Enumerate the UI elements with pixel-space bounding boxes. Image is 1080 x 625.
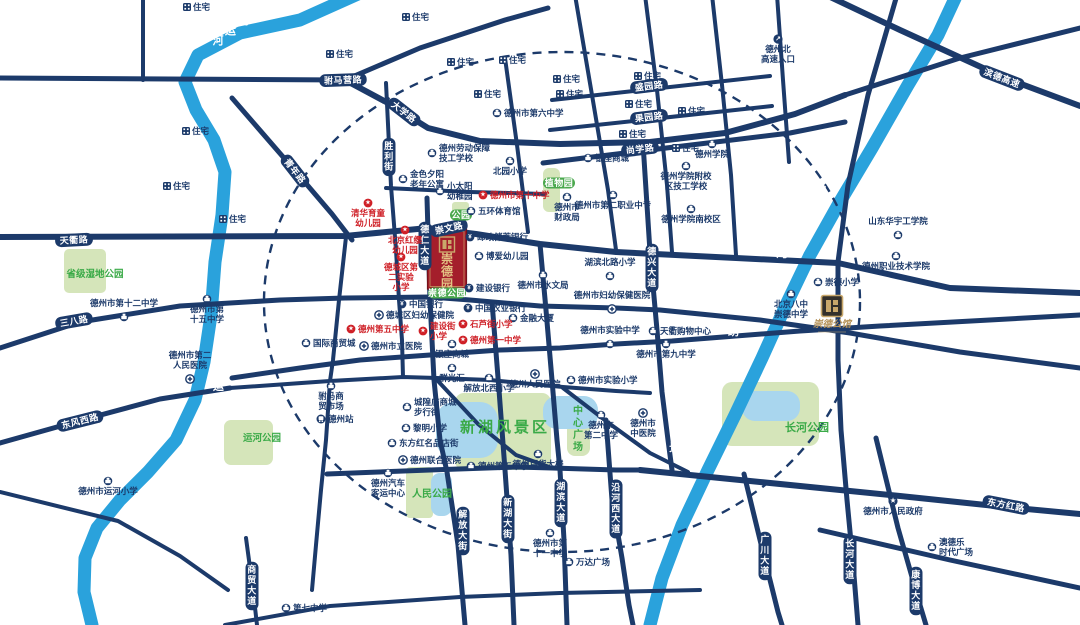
- label: 湖: [503, 507, 513, 518]
- housing-marker: 住宅: [625, 99, 653, 109]
- building-icon: [540, 274, 545, 277]
- building-icon: [566, 194, 569, 196]
- label: 大: [458, 530, 468, 541]
- label: 广: [760, 534, 770, 545]
- housing-marker: 住宅: [619, 129, 647, 139]
- road-label: 康博大道: [910, 567, 923, 616]
- building-icon: [609, 341, 612, 343]
- building-icon: [283, 607, 288, 610]
- housing-icon: [635, 73, 637, 75]
- housing-icon: [479, 91, 481, 93]
- map-poi: 五环体育馆: [467, 206, 521, 216]
- train-station-icon: [319, 416, 324, 420]
- label: 技工学校: [439, 153, 474, 163]
- housing-icon: [183, 132, 185, 134]
- park-label: 运河公园: [243, 432, 281, 444]
- label: 街: [502, 528, 513, 539]
- location-map: 崇德园崇德公馆驸马营路大学路胜利街青年路天衢路三八路东风西路崇文路盛园路果园路尚…: [0, 0, 1080, 625]
- housing-icon: [626, 101, 628, 103]
- building-icon: [451, 365, 454, 367]
- map-poi: 德州站: [317, 414, 355, 424]
- label: 京: [250, 3, 261, 17]
- building-icon: [391, 440, 394, 442]
- map-poi: 德州市运河小学: [78, 477, 138, 496]
- road: [777, 0, 789, 162]
- map-canvas: 崇德园崇德公馆驸马营路大学路胜利街青年路天衢路三八路东风西路崇文路盛园路果园路尚…: [0, 0, 1080, 625]
- housing-icon: [448, 63, 450, 65]
- housing-icon: [624, 131, 626, 133]
- label: 幼稚园: [447, 191, 473, 201]
- label: 德州市人民政府: [863, 506, 923, 516]
- housing-icon: [163, 182, 171, 190]
- label: 贸市场: [318, 401, 344, 411]
- label: 德州百货大楼: [512, 459, 564, 469]
- housing-icon: [184, 8, 186, 10]
- label: 河: [207, 397, 218, 411]
- label: 德州汽车: [371, 478, 406, 488]
- building-icon: [929, 546, 934, 549]
- housing-marker: 住宅: [447, 57, 475, 67]
- label: 天衢路: [59, 233, 89, 246]
- label: 德州市立医院: [371, 341, 423, 351]
- label: 德城区第: [384, 262, 419, 272]
- label: 放: [457, 519, 468, 530]
- label: 邮政储蓄银行: [477, 232, 529, 242]
- label: 德: [420, 224, 430, 235]
- building-icon: [204, 298, 209, 301]
- label: 杭: [237, 13, 248, 27]
- building-icon: [402, 176, 405, 178]
- building-icon: [451, 341, 454, 343]
- building-icon: [429, 152, 434, 155]
- housing-icon: [407, 14, 409, 16]
- road-label: 天衢路: [55, 233, 93, 248]
- label: 驸马营路: [324, 74, 363, 86]
- housing-marker: 住宅: [163, 181, 191, 191]
- label: 德州学院附校: [660, 171, 712, 181]
- housing-icon: [500, 61, 502, 63]
- housing-icon: [499, 56, 507, 64]
- label: 中国农业银行: [475, 303, 527, 313]
- label: 银座商城: [594, 153, 630, 163]
- building-icon: [607, 343, 612, 346]
- label: 运河公园: [243, 432, 281, 444]
- road-label: 新湖大街: [502, 495, 515, 544]
- label: 德州市第: [190, 304, 225, 314]
- building-icon: [512, 315, 515, 317]
- housing-label: 住宅: [229, 214, 247, 224]
- map-poi: ★德州第一中学: [459, 335, 522, 345]
- road-label: 长河大道: [844, 536, 857, 585]
- label: 场: [573, 440, 583, 453]
- label: 大: [503, 518, 513, 529]
- housing-label: 住宅: [644, 71, 662, 81]
- building-icon: [570, 377, 573, 379]
- map-poi: ¥建设银行: [465, 283, 511, 293]
- label: 德州学院南校区: [661, 214, 721, 224]
- label: 京: [226, 341, 237, 355]
- building-icon: [690, 206, 693, 208]
- housing-icon: [500, 57, 502, 59]
- housing-label: 住宅: [688, 106, 706, 116]
- label: 运: [213, 379, 224, 392]
- housing-icon: [224, 220, 226, 222]
- label: 大: [911, 590, 921, 601]
- housing-label: 住宅: [563, 74, 581, 84]
- building-icon: [568, 559, 571, 561]
- park-label: 人民公园: [412, 487, 452, 500]
- mansion-layer: 崇德公馆: [813, 296, 853, 333]
- map-poi: ¥中国农业银行: [464, 303, 527, 313]
- label: 德州市妇幼保健医院: [574, 290, 651, 300]
- map-poi: 北园小学: [493, 157, 528, 176]
- road-label: 驸马营路: [319, 73, 367, 87]
- map-poi: 群光汇: [438, 364, 465, 383]
- label: ¥: [468, 234, 472, 241]
- label: ★: [889, 498, 896, 505]
- housing-icon: [557, 91, 559, 93]
- housing-marker: 住宅: [183, 2, 211, 12]
- housing-icon: [679, 112, 681, 114]
- housing-label: 住宅: [193, 2, 211, 12]
- label: 大: [420, 245, 430, 256]
- building-icon: [893, 255, 898, 258]
- housing-icon: [678, 107, 686, 115]
- map-poi: 金融大厦: [509, 313, 555, 323]
- map-poi: 德城区妇幼保健院: [375, 310, 455, 320]
- label: 北京红缨: [388, 235, 423, 245]
- housing-label: 住宅: [484, 89, 502, 99]
- label: 川: [759, 545, 770, 555]
- building-icon: [470, 208, 473, 210]
- label: 道: [611, 523, 621, 534]
- building-icon: [817, 279, 820, 281]
- map-poi: 解放北西小学: [463, 374, 515, 393]
- label: 贸: [247, 574, 257, 585]
- housing-icon: [448, 59, 450, 61]
- label: 河: [611, 492, 621, 503]
- housing-label: 住宅: [192, 126, 210, 136]
- road-label: 青年路: [278, 152, 311, 190]
- housing-icon: [673, 149, 675, 151]
- housing-icon: [679, 108, 681, 110]
- project-layer: 崇德园: [428, 229, 467, 291]
- building-icon: [711, 141, 714, 143]
- label: 解: [458, 509, 468, 520]
- housing-icon: [403, 18, 405, 20]
- label: 德州职业技术学院: [862, 261, 931, 271]
- label: 德州北: [765, 44, 791, 54]
- building-icon: [496, 110, 499, 112]
- label: 广: [573, 428, 583, 441]
- building-icon: [650, 330, 655, 333]
- housing-icon: [639, 77, 641, 79]
- housing-icon: [557, 95, 559, 97]
- building-icon: [931, 544, 934, 546]
- map-poi: ↗德州北高速入口: [761, 34, 795, 64]
- building-icon: [330, 383, 333, 385]
- housing-icon: [220, 216, 222, 218]
- road-label: 德仁大道: [419, 222, 432, 271]
- label: 德州市: [588, 420, 614, 430]
- label: 德州市第十二中学: [90, 298, 159, 308]
- road-label: 大学路: [385, 95, 423, 128]
- label: 长: [845, 538, 855, 549]
- label: 德州市: [630, 418, 656, 428]
- label: 德州市第二职业中专: [575, 200, 652, 210]
- map-poi: 德州市第六中学: [493, 108, 564, 118]
- building-icon: [598, 414, 603, 417]
- label: 大: [247, 585, 257, 596]
- housing-label: 住宅: [412, 12, 430, 22]
- park-label-pill: 崇德公园: [428, 287, 466, 299]
- label: 德州市实验中学: [580, 325, 640, 335]
- road-label: 沿河西大道: [610, 480, 623, 539]
- housing-icon: [327, 51, 329, 53]
- label: 博爱幼儿园: [486, 251, 529, 261]
- map-poi: 德州市第二职业中专: [575, 191, 652, 210]
- housing-marker: 住宅: [634, 71, 662, 81]
- building-icon: [688, 208, 693, 211]
- project-logo-icon: [443, 240, 447, 249]
- label: 大: [556, 502, 566, 513]
- project-logo-icon: [448, 240, 452, 244]
- housing-icon: [561, 95, 563, 97]
- label: 人民医院: [173, 360, 208, 370]
- building-icon: [788, 293, 793, 296]
- park-label: 长河公园: [785, 420, 829, 434]
- building-icon: [542, 272, 545, 274]
- label: 德州劳动保障: [439, 143, 491, 153]
- label: 幼儿园: [355, 218, 381, 228]
- building-icon: [431, 150, 434, 152]
- label: 时代广场: [939, 547, 974, 557]
- building-icon: [609, 273, 612, 275]
- building-icon: [547, 532, 552, 535]
- building-icon: [535, 453, 540, 456]
- road-label: 德兴大道: [646, 244, 659, 293]
- label: 大: [611, 513, 621, 524]
- label: 道: [556, 512, 566, 523]
- map-poi: 德州学院附校区技工学校: [660, 162, 712, 191]
- label: 德州第一中学: [470, 335, 522, 345]
- building-icon: [585, 157, 590, 160]
- housing-marker: 住宅: [219, 214, 247, 224]
- label: 大: [760, 555, 770, 566]
- project-badge-chongdeyuan: 崇德园: [428, 229, 467, 291]
- label: 河: [213, 33, 224, 47]
- map-poi: ★德城区第二实验小学: [384, 253, 419, 292]
- building-icon: [449, 343, 454, 346]
- building-icon: [897, 232, 900, 234]
- label: 二实验: [388, 272, 414, 282]
- label: 绣: [727, 324, 740, 338]
- building-icon: [685, 163, 688, 165]
- label: 德州市第二: [169, 350, 212, 360]
- road-label: 解放大街: [457, 507, 470, 556]
- label: 河: [775, 245, 788, 260]
- label: 北园小学: [493, 166, 528, 176]
- label: 沿: [611, 482, 621, 493]
- label: 道: [247, 595, 257, 606]
- map-poi: ★建设街小学: [419, 321, 456, 341]
- label: 杭: [219, 360, 230, 374]
- label: 道: [845, 569, 855, 580]
- housing-icon: [620, 135, 622, 137]
- building-icon: [488, 375, 491, 377]
- map-poi: 德州劳动保障技工学校: [428, 143, 491, 163]
- label: 德州市第十中学: [490, 190, 550, 200]
- housing-icon: [475, 95, 477, 97]
- label: 崇德公园: [428, 287, 466, 298]
- building-icon: [507, 160, 512, 163]
- mansion-logo-icon: [833, 307, 838, 312]
- label: 人民公园: [412, 487, 452, 500]
- housing-icon: [630, 101, 632, 103]
- housing-marker: 住宅: [678, 106, 706, 116]
- building-icon: [549, 530, 552, 532]
- housing-icon: [556, 90, 564, 98]
- label: 德: [647, 246, 657, 257]
- label: 万达广场: [575, 557, 611, 567]
- housing-label: 住宅: [173, 181, 191, 191]
- label: 道: [647, 277, 657, 288]
- road-label: 滨德高速: [978, 64, 1027, 93]
- building-icon: [815, 281, 820, 284]
- housing-icon: [188, 8, 190, 10]
- label: 德州市第六中学: [504, 108, 564, 118]
- label: 金色夕阳: [409, 169, 444, 179]
- housing-icon: [561, 91, 563, 93]
- map-poi: 北京八中崇德中学: [774, 290, 809, 319]
- label: 建设街: [429, 321, 456, 331]
- building-icon: [403, 427, 408, 430]
- label: 天衢购物中心: [660, 326, 712, 336]
- label: 崇德中学: [774, 309, 809, 319]
- label: 利: [383, 150, 394, 161]
- building-icon: [607, 275, 612, 278]
- label: 德州市运河小学: [78, 486, 138, 496]
- map-poi: 湖滨北路小学: [584, 257, 636, 280]
- building-icon: [406, 404, 409, 406]
- housing-icon: [673, 145, 675, 147]
- housing-icon: [672, 144, 680, 152]
- label: 金融大厦: [519, 313, 555, 323]
- road-label: 胜利街: [383, 138, 396, 176]
- housing-marker: 住宅: [474, 89, 502, 99]
- label: 黎明小学: [412, 423, 448, 433]
- building-icon: [509, 158, 512, 160]
- housing-icon: [635, 77, 637, 79]
- map-poi: 银座商城: [584, 153, 630, 163]
- map-poi: ★清华育童幼儿园: [351, 199, 386, 228]
- housing-icon: [187, 132, 189, 134]
- train-station-icon: [319, 421, 321, 423]
- label: 步行街: [414, 407, 440, 417]
- label: ¥: [400, 301, 404, 308]
- building-icon: [683, 165, 688, 168]
- label: 德州人民医院: [509, 379, 561, 389]
- housing-icon: [224, 216, 226, 218]
- building-icon: [566, 561, 571, 564]
- housing-icon: [403, 14, 405, 16]
- housing-icon: [677, 145, 679, 147]
- housing-icon: [187, 128, 189, 130]
- housing-icon: [164, 187, 166, 189]
- housing-icon: [554, 76, 556, 78]
- building-icon: [437, 190, 442, 193]
- building-icon: [478, 253, 481, 255]
- housing-marker: 住宅: [553, 74, 581, 84]
- housing-label: 住宅: [635, 99, 653, 109]
- housing-icon: [624, 135, 626, 137]
- label: 三八路: [59, 313, 89, 329]
- housing-icon: [164, 183, 166, 185]
- housing-icon: [183, 128, 185, 130]
- housing-marker: 住宅: [556, 89, 584, 99]
- building-icon: [121, 316, 126, 319]
- label: 德州第五中学: [358, 324, 410, 334]
- housing-marker: 住宅: [182, 126, 210, 136]
- label: 博: [911, 579, 921, 590]
- housing-icon: [504, 57, 506, 59]
- housing-icon: [326, 50, 334, 58]
- building-icon: [385, 472, 390, 475]
- label: 锦: [748, 285, 759, 299]
- park-label: 中心广场: [573, 404, 583, 453]
- map-poi: 山东华宇工学院: [868, 216, 928, 239]
- label: 建设银行: [475, 283, 511, 293]
- road-label: 东风西路: [55, 409, 104, 433]
- label: 第二中学: [584, 430, 619, 440]
- label: 康: [911, 569, 921, 580]
- building-icon: [470, 463, 473, 465]
- label: 中: [573, 404, 583, 417]
- label: 小太阳: [446, 181, 473, 191]
- label: 湖: [556, 481, 566, 492]
- label: 银座商城: [434, 349, 470, 359]
- label: 大: [647, 267, 657, 278]
- housing-icon: [452, 59, 454, 61]
- building-icon: [206, 296, 209, 298]
- label: 区技工学校: [665, 181, 708, 191]
- building-icon: [285, 605, 288, 607]
- label: 中医院: [630, 428, 656, 438]
- building-icon: [587, 155, 590, 157]
- park-label-pill: 植物园: [543, 177, 575, 189]
- label: 澳德乐: [939, 537, 965, 547]
- housing-icon: [625, 100, 633, 108]
- label: 胜: [383, 140, 394, 151]
- map-poi: 德州市水文局: [517, 271, 568, 290]
- building-icon: [449, 367, 454, 370]
- map-poi: ★德州第五中学: [347, 324, 410, 334]
- label: 北京八中: [774, 299, 808, 309]
- label: 小学: [429, 331, 448, 341]
- housing-icon: [402, 13, 410, 21]
- label: 德州站: [328, 414, 354, 424]
- housing-label: 住宅: [629, 129, 647, 139]
- housing-icon: [182, 127, 190, 135]
- label: 德州市第: [533, 538, 568, 548]
- housing-label: 住宅: [336, 49, 354, 59]
- map-poi: 德州市第十五中学: [190, 295, 225, 324]
- building-icon: [387, 470, 390, 472]
- label: 川: [707, 364, 719, 377]
- building-icon: [790, 291, 793, 293]
- map-poi: 德州职业技术学院: [862, 252, 931, 271]
- housing-icon: [168, 187, 170, 189]
